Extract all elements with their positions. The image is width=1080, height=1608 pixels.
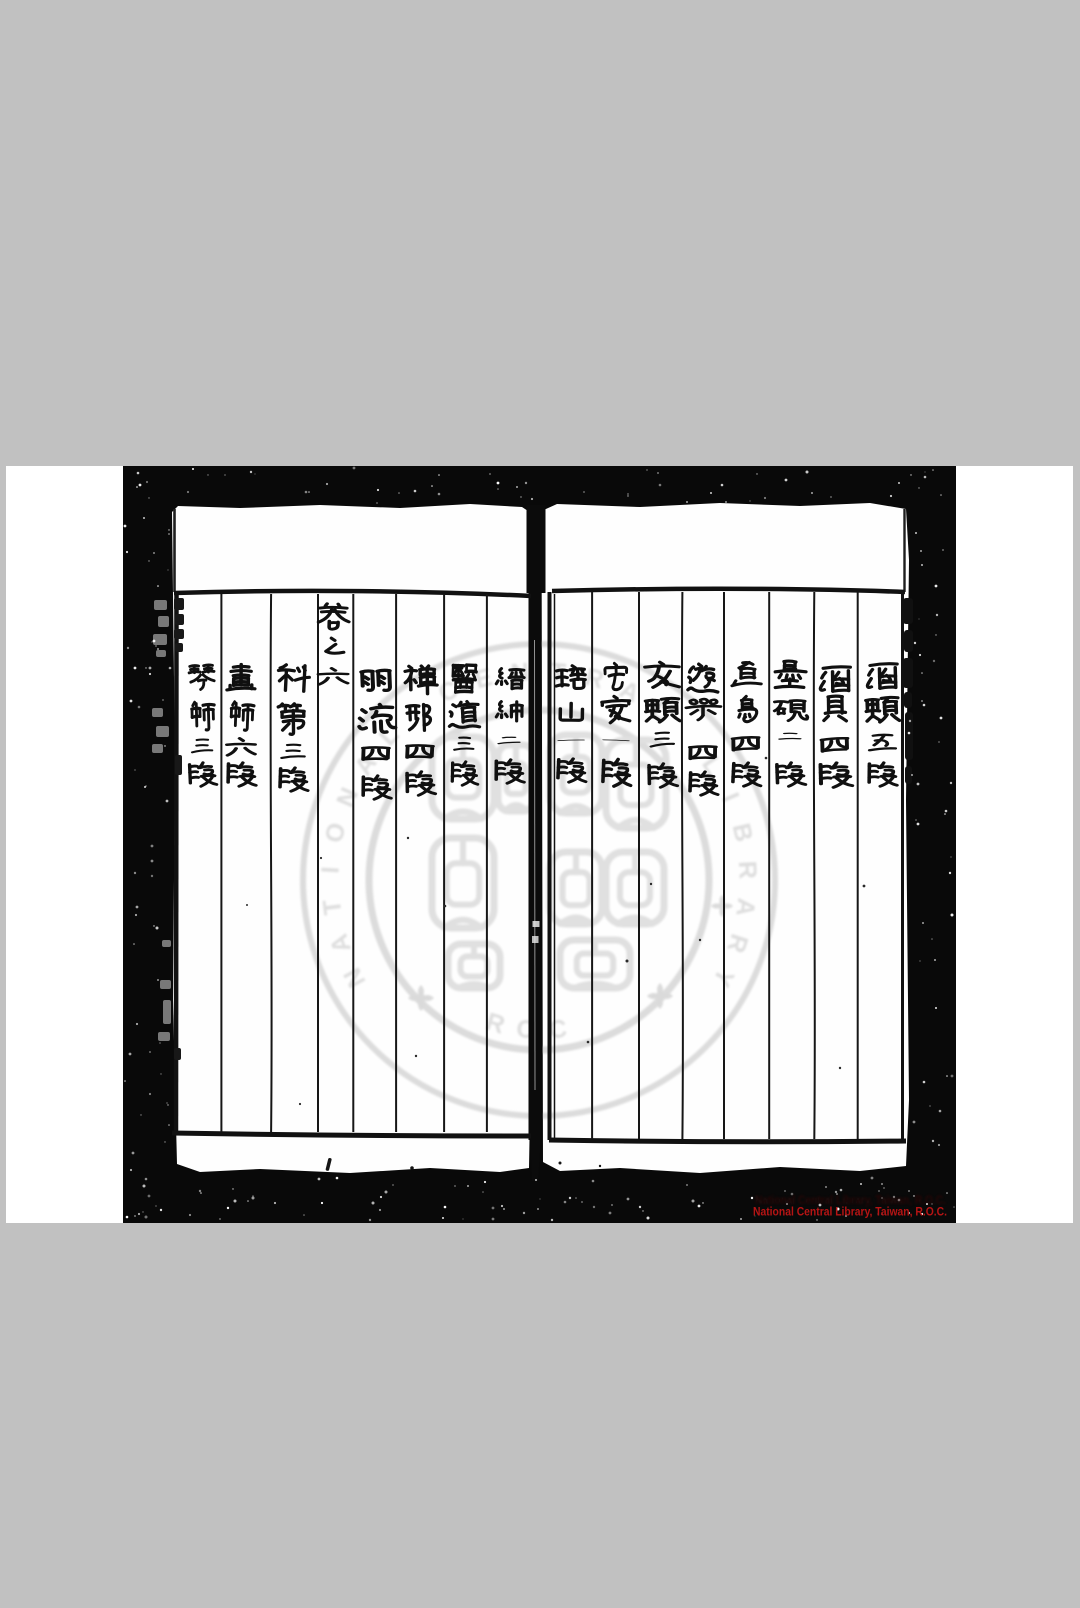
svg-text:National Central Library, Taiw: National Central Library, Taiwan, R.O.C. [755,1195,946,1207]
svg-text:I: I [316,866,344,874]
svg-text:National Central Library, Taiw: National Central Library, Taiwan, R.O.C. [753,1207,947,1219]
svg-text:T: T [549,658,567,687]
svg-text:R: R [733,860,762,880]
svg-text:A: A [730,896,760,917]
